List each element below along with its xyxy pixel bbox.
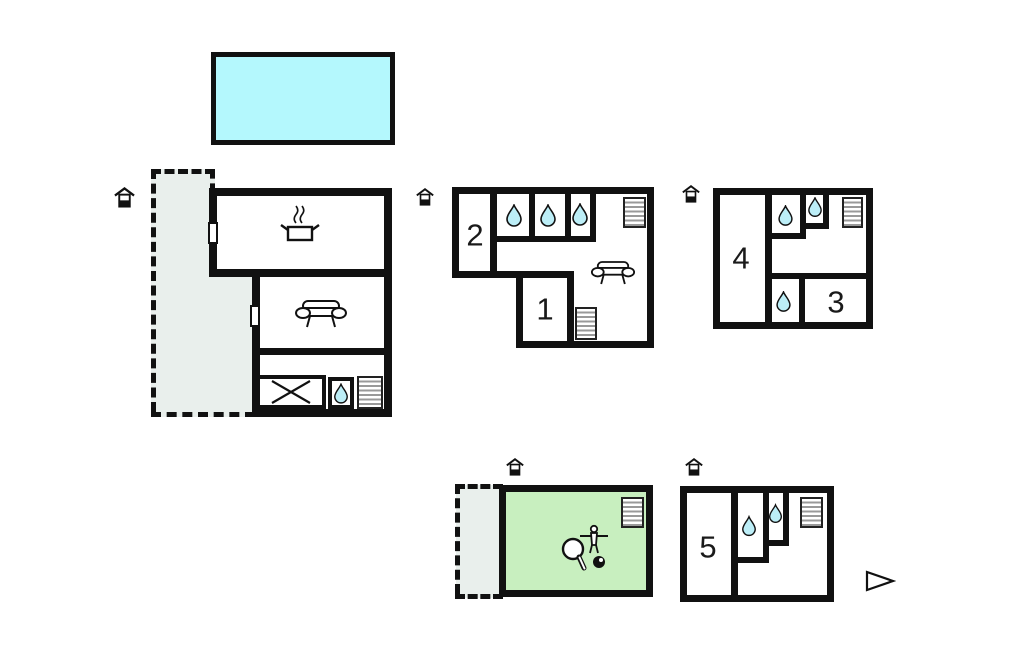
direction-flag-icon — [864, 569, 896, 593]
water-drop-icon — [777, 205, 794, 227]
cooking-pot-icon — [279, 203, 321, 243]
floor-plan-canvas: 2 1 4 3 — [0, 0, 1024, 652]
wall — [765, 233, 806, 239]
table-tennis-foosball-icon — [558, 520, 610, 572]
terrace-area — [151, 169, 215, 417]
wall — [490, 187, 497, 278]
sofa-icon — [295, 298, 347, 330]
wall — [800, 188, 806, 239]
wall — [384, 188, 392, 417]
wall — [252, 409, 392, 417]
water-drop-icon — [807, 197, 823, 218]
water-drop-icon — [741, 515, 757, 538]
water-drop-icon — [571, 203, 589, 227]
terrace-dashed-border — [151, 169, 215, 174]
wall — [783, 486, 789, 546]
wall — [765, 188, 772, 329]
stairs-icon — [842, 197, 863, 228]
stairs-icon — [621, 497, 644, 528]
stairs-icon — [575, 307, 597, 340]
wall — [209, 269, 392, 277]
wall — [516, 341, 654, 348]
room-4-label: 4 — [732, 243, 749, 274]
terrace-area — [456, 485, 503, 598]
room-2-label: 2 — [466, 220, 483, 251]
room-1-label: 1 — [536, 294, 553, 325]
crossed-table-box — [256, 375, 326, 409]
wall — [647, 187, 654, 348]
water-drop-icon — [539, 204, 557, 228]
wall — [452, 187, 654, 194]
swimming-pool — [211, 52, 395, 145]
crossed-table-icon — [260, 379, 322, 405]
terrace-dashed-border — [151, 169, 156, 412]
terrace-dashed-border — [455, 484, 460, 594]
terrace-dashed-border — [455, 484, 503, 489]
terrace-dashed-border — [455, 594, 503, 599]
wall — [252, 348, 392, 355]
wall — [529, 187, 535, 242]
wall — [731, 557, 769, 563]
stairs-icon — [623, 197, 646, 228]
water-drop-icon — [505, 204, 523, 228]
water-drop-icon — [775, 291, 792, 313]
door-opening — [208, 222, 218, 244]
house-entrance-icon — [682, 185, 700, 203]
water-drop-icon — [768, 503, 783, 525]
wall — [567, 271, 574, 348]
door-opening — [250, 305, 260, 327]
wall — [209, 188, 392, 196]
house-entrance-icon — [506, 458, 524, 476]
stairs-icon — [800, 497, 823, 528]
house-entrance-icon — [416, 188, 434, 206]
wall — [590, 187, 596, 242]
water-drop-icon — [333, 383, 349, 405]
wall — [799, 273, 805, 329]
wall — [452, 271, 523, 278]
wall — [763, 540, 789, 546]
wall — [452, 187, 459, 278]
terrace-area — [215, 269, 255, 417]
house-entrance-icon — [685, 458, 703, 476]
room-5-label: 5 — [699, 532, 716, 563]
terrace-dashed-border — [151, 412, 255, 417]
wall — [516, 271, 574, 278]
room-3-label: 3 — [827, 287, 844, 318]
stairs-icon — [357, 376, 383, 409]
wall — [497, 236, 596, 242]
wall — [765, 273, 873, 279]
house-entrance-icon — [114, 187, 135, 208]
wall — [516, 271, 523, 348]
wall — [731, 486, 738, 602]
sofa-icon — [591, 259, 635, 287]
wall — [800, 223, 829, 229]
